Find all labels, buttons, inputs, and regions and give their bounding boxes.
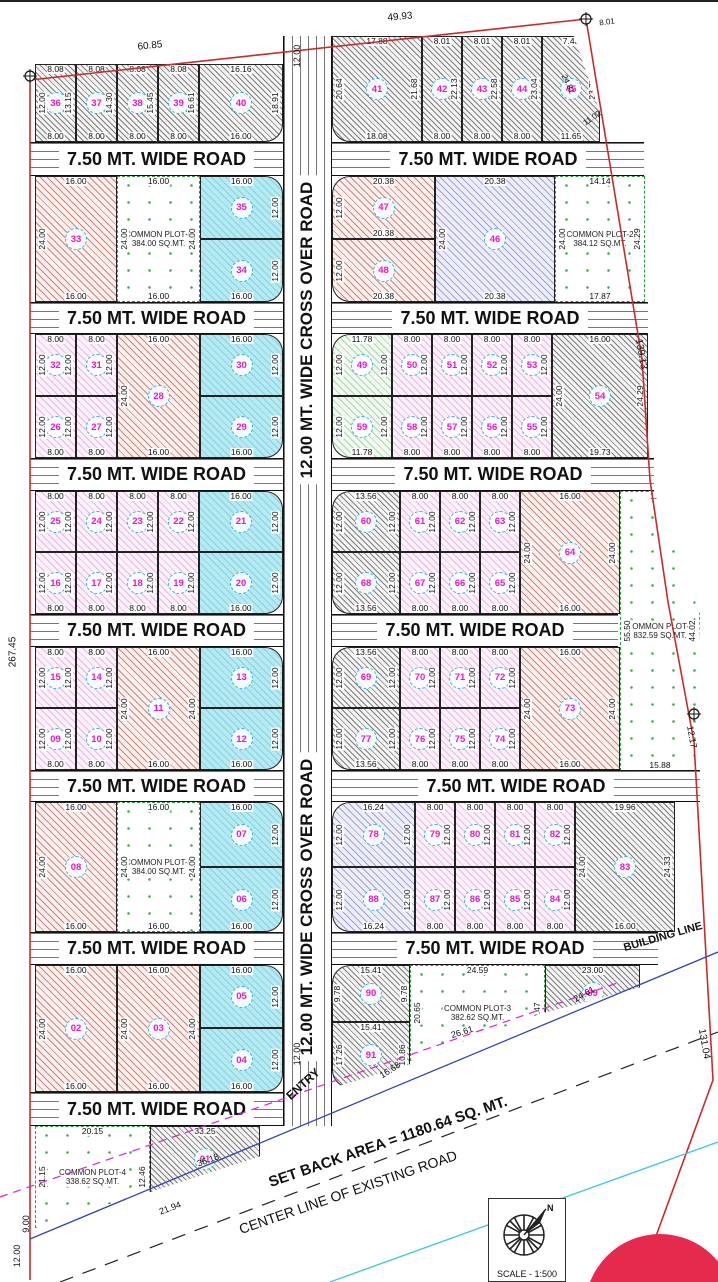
dimension-label: 12.00 <box>38 91 47 114</box>
dimension-label: 8.00 <box>491 492 510 501</box>
road-label: 7.50 MT. WIDE ROAD <box>59 308 254 329</box>
dimension-label: 12.00 <box>500 415 509 438</box>
dimension-label: 8.00 <box>169 492 188 501</box>
dimension-label: 12.00 <box>380 415 389 438</box>
dimension-label: 16.00 <box>147 760 170 769</box>
dimension-label: 8.00 <box>128 604 147 613</box>
common-plot-name: COMMON PLOT-5 <box>125 858 192 867</box>
dimension-label: 12.00 <box>271 888 280 911</box>
dimension-label: 8.00 <box>546 803 565 812</box>
dimension-label: 16.00 <box>613 922 636 931</box>
dimension-label: 12.00 <box>335 571 344 594</box>
dimension-label: 12.00 <box>105 510 114 533</box>
dimension-label: 24.00 <box>120 384 129 407</box>
dimension-label: 12.00 <box>468 666 477 689</box>
dimension-label: 16.00 <box>588 335 611 344</box>
dimension-label: 12.00 <box>335 353 344 376</box>
dimension-label: 8.01 <box>433 37 452 46</box>
dimension-label: 16.00 <box>147 448 170 457</box>
annotation-text: 139.13 <box>633 338 649 370</box>
annotation-text: 21.94 <box>158 1199 183 1216</box>
annotation-text: 131.04 <box>696 1028 712 1060</box>
dimension-label: 8.00 <box>46 132 65 141</box>
common-plot-label: COMMON PLOT-6384.00 SQ.MT. <box>123 229 194 249</box>
dimension-label: 12.00 <box>64 415 73 438</box>
dimension-label: 8.00 <box>433 132 452 141</box>
dimension-label: 12.00 <box>105 727 114 750</box>
dimension-label: 12.00 <box>403 888 412 911</box>
common-plot-area: 384.00 SQ.MT. <box>125 867 192 876</box>
dimension-label: 24.33 <box>663 855 672 878</box>
dimension-label: 16.00 <box>230 177 253 186</box>
dimension-label: 12.00 <box>271 1048 280 1071</box>
dimension-label: 24.00 <box>120 227 129 250</box>
dimension-label: 8.00 <box>473 132 492 141</box>
road-label: 7.50 MT. WIDE ROAD <box>59 1099 254 1120</box>
dimension-label: 16.00 <box>230 760 253 769</box>
dimension-label: 8.00 <box>403 335 422 344</box>
dimension-label: 8.00 <box>128 492 147 501</box>
dimension-label: 12.00 <box>540 415 549 438</box>
dimension-label: 22.58 <box>490 77 499 100</box>
road-label: 7.50 MT. WIDE ROAD <box>392 308 587 329</box>
dimension-label: 8.00 <box>451 604 470 613</box>
dimension-label: 16.00 <box>147 803 170 812</box>
dimension-label: 8.00 <box>46 335 65 344</box>
dimension-label: 16.00 <box>230 966 253 975</box>
dimension-label: 12.00 <box>460 353 469 376</box>
dimension-label: 8.08 <box>128 65 147 74</box>
dimension-label: 8.00 <box>46 648 65 657</box>
dimension-label: 12.00 <box>38 353 47 376</box>
dimension-label: 8.00 <box>87 604 106 613</box>
dimension-label: 24.00 <box>188 697 197 720</box>
dimension-label: 20.64 <box>335 77 344 100</box>
dimension-label: 8.00 <box>491 760 510 769</box>
cross-over-road-label: 12.00 MT. WIDE CROSS OVER ROAD <box>297 753 317 1062</box>
dimension-label: 9.78 <box>400 984 409 1003</box>
dimension-label: 17.87 <box>588 292 611 301</box>
annotation-text: 16.68 <box>378 1060 402 1081</box>
common-plot-name: COMMON PLOT-6 <box>125 230 192 239</box>
dimension-label: 22.13 <box>450 77 459 100</box>
dimension-label: 16.00 <box>230 1082 253 1091</box>
dimension-label: 13.56 <box>354 648 377 657</box>
road-label: 7.50 MT. WIDE ROAD <box>59 620 254 641</box>
common-plot-label: COMMON PLOT-5384.00 SQ.MT. <box>123 857 194 877</box>
dimension-label: 12.00 <box>271 415 280 438</box>
dimension-label: 8.00 <box>426 803 445 812</box>
dimension-label: 20.38 <box>372 177 395 186</box>
dimension-label: 16.00 <box>64 803 87 812</box>
dimension-label: 8.00 <box>451 760 470 769</box>
dimension-label: 8.00 <box>87 448 106 457</box>
dimension-label: 8.01 <box>513 37 532 46</box>
dimension-label: 12.00 <box>443 888 452 911</box>
road-label: 7.50 MT. WIDE ROAD <box>59 776 254 797</box>
dimension-label: 12.00 <box>105 571 114 594</box>
dimension-label: 12.00 <box>146 510 155 533</box>
dimension-label: 12.00 <box>468 510 477 533</box>
dimension-label: 16.00 <box>230 448 253 457</box>
annotation-text: 12.00 <box>292 45 302 68</box>
dimension-label: 24.00 <box>120 1017 129 1040</box>
annotation-text: 49.93 <box>387 10 413 23</box>
dimension-label: 24.00 <box>188 1017 197 1040</box>
dimension-label: 13.56 <box>354 760 377 769</box>
dimension-label: 16.24 <box>362 803 385 812</box>
dimension-label: 24.00 <box>578 855 587 878</box>
dimension-label: 8.00 <box>443 448 462 457</box>
dimension-label: 8.00 <box>546 922 565 931</box>
dimension-label: 12.00 <box>335 415 344 438</box>
dimension-label: 24.00 <box>608 541 617 564</box>
dimension-label: 12.00 <box>271 823 280 846</box>
dimension-label: 12.00 <box>64 571 73 594</box>
dimension-label: 24.00 <box>188 855 197 878</box>
dimension-label: 12.00 <box>523 823 532 846</box>
dimension-label: 8.00 <box>426 922 445 931</box>
road-label: 7.50 MT. WIDE ROAD <box>59 464 254 485</box>
dimension-label: 12.00 <box>187 510 196 533</box>
dimension-label: 16.00 <box>64 922 87 931</box>
dimension-label: 8.00 <box>451 492 470 501</box>
dimension-label: 24.29 <box>636 384 645 407</box>
dimension-label: 12.00 <box>468 727 477 750</box>
dimension-label: 8.00 <box>87 760 106 769</box>
dimension-label: 12.00 <box>428 571 437 594</box>
dimension-label: 9.78 <box>333 984 342 1003</box>
dimension-label: 16.00 <box>64 177 87 186</box>
dimension-label: 12.00 <box>483 888 492 911</box>
dimension-label: 20.38 <box>372 229 395 238</box>
dimension-label: 13.56 <box>354 604 377 613</box>
dimension-label: 12.00 <box>38 666 47 689</box>
dimension-label: 24.00 <box>38 1017 47 1040</box>
dimension-label: 8.00 <box>87 335 106 344</box>
dimension-label: 16.00 <box>558 760 581 769</box>
dimension-label: 16.00 <box>229 132 252 141</box>
dimension-label: 12.00 <box>271 196 280 219</box>
dimension-label: 12.00 <box>335 510 344 533</box>
dimension-label: 8.00 <box>506 922 525 931</box>
dimension-label: 21.68 <box>410 77 419 100</box>
dimension-label: 12.00 <box>403 823 412 846</box>
dimension-label: 18.91 <box>271 91 280 114</box>
dimension-label: 11.78 <box>351 448 374 457</box>
scale-label: SCALE - 1:500 <box>497 1269 557 1279</box>
dimension-label: 16.00 <box>230 922 253 931</box>
dimension-label: 8.00 <box>169 604 188 613</box>
annotations-layer: 60.8549.938.0111.0224.81267.4512.0012.00… <box>0 2 718 1282</box>
dimension-label: 8.00 <box>491 648 510 657</box>
road-label: 7.50 MT. WIDE ROAD <box>377 620 572 641</box>
dimension-label: 12.00 <box>380 353 389 376</box>
dimension-label: 8.00 <box>411 760 430 769</box>
north-label: N <box>547 1203 554 1213</box>
dimension-label: 8.01 <box>473 37 492 46</box>
dimension-label: 12.00 <box>420 415 429 438</box>
dimension-label: 12.00 <box>388 727 397 750</box>
dimension-label: 13.56 <box>354 492 377 501</box>
dimension-label: 16.00 <box>229 604 252 613</box>
compass-rose-icon: N <box>496 1201 558 1263</box>
dimension-label: 12.00 <box>523 888 532 911</box>
dimension-label: 24.00 <box>558 227 567 250</box>
dimension-label: 24.00 <box>523 541 532 564</box>
dimension-label: 24.00 <box>438 227 447 250</box>
dimension-label: 8.00 <box>443 335 462 344</box>
road-label: 7.50 MT. WIDE ROAD <box>418 776 613 797</box>
dimension-label: 20.38 <box>372 292 395 301</box>
dimension-label: 12.00 <box>38 727 47 750</box>
dimension-label: 16.00 <box>230 803 253 812</box>
dimension-label: 12.00 <box>271 571 280 594</box>
dimension-label: 8.00 <box>128 132 147 141</box>
dimension-label: 8.00 <box>411 648 430 657</box>
dimension-label: 12.00 <box>443 823 452 846</box>
dimension-label: 12.00 <box>508 727 517 750</box>
dimension-label: 12.00 <box>335 888 344 911</box>
dimension-label: 19.73 <box>588 448 611 457</box>
site-plan-canvas: 368.088.0012.0013.15378.088.0014.30388.0… <box>0 0 718 1282</box>
dimension-label: 8.00 <box>523 448 542 457</box>
dimension-label: 16.00 <box>64 292 87 301</box>
annotation-text: 8.01 <box>599 16 616 27</box>
dimension-label: 16.00 <box>147 177 170 186</box>
dimension-label: 8.00 <box>451 648 470 657</box>
dimension-label: 12.00 <box>563 888 572 911</box>
dimension-label: 16.00 <box>229 492 252 501</box>
annotation-text: 24.81 <box>560 73 577 95</box>
dimension-label: 15.45 <box>146 91 155 114</box>
dimension-label: 16.00 <box>147 648 170 657</box>
dimension-label: 12.00 <box>388 666 397 689</box>
dimension-label: 8.00 <box>491 604 510 613</box>
annotation-text: 36.18 <box>196 1151 221 1168</box>
dimension-label: 12.00 <box>271 259 280 282</box>
dimension-label: 16.61 <box>187 91 196 114</box>
dimension-label: 8.00 <box>466 803 485 812</box>
annotation-text: 12.17 <box>685 725 699 749</box>
annotation-text: 267.45 <box>8 637 19 668</box>
dimension-label: 24.00 <box>523 697 532 720</box>
dimension-label: 18.08 <box>365 132 388 141</box>
dimension-label: 16.00 <box>558 604 581 613</box>
dimension-label: 8.00 <box>87 492 106 501</box>
dimension-label: 12.00 <box>540 353 549 376</box>
common-plot-area: 384.12 SQ.MT. <box>566 239 633 248</box>
dimension-label: 12.00 <box>105 415 114 438</box>
dimension-label: 8.00 <box>411 492 430 501</box>
dimension-label: 24.29 <box>633 227 642 250</box>
dimension-label: 16.00 <box>147 922 170 931</box>
dimension-label: 24.00 <box>188 227 197 250</box>
dimension-label: 8.00 <box>483 335 502 344</box>
dimension-label: 16.00 <box>147 966 170 975</box>
road-label: 7.50 MT. WIDE ROAD <box>390 149 585 170</box>
dimension-label: 12.00 <box>38 510 47 533</box>
compass-box: N SCALE - 1:500 <box>488 1198 566 1282</box>
dimension-label: 24.00 <box>38 227 47 250</box>
dimension-label: 12.00 <box>38 571 47 594</box>
road-label: 7.50 MT. WIDE ROAD <box>59 149 254 170</box>
dimension-label: 12.00 <box>335 666 344 689</box>
annotation-text: 12.00 <box>292 1043 302 1066</box>
dimension-label: 23.04 <box>530 77 539 100</box>
road-label: 7.50 MT. WIDE ROAD <box>395 464 590 485</box>
common-plot-label: COMMON PLOT-2384.12 SQ.MT. <box>564 229 635 249</box>
dimension-label: 15.41 <box>359 966 382 975</box>
dimension-label: 8.00 <box>46 448 65 457</box>
dimension-label: 13.15 <box>64 91 73 114</box>
dimension-label: 12.00 <box>428 727 437 750</box>
dimension-label: 12.00 <box>428 666 437 689</box>
dimension-label: 24.00 <box>608 697 617 720</box>
dimension-label: 8.00 <box>87 648 106 657</box>
cross-over-road-label: 12.00 MT. WIDE CROSS OVER ROAD <box>297 176 317 485</box>
dimension-label: 16.00 <box>230 292 253 301</box>
dimension-label: 16.00 <box>147 1082 170 1091</box>
dimension-label: 16.00 <box>230 648 253 657</box>
dimension-label: 19.96 <box>613 803 636 812</box>
dimension-label: 12.00 <box>500 353 509 376</box>
annotation-text: 12.00 <box>12 1245 22 1268</box>
dimension-label: 12.00 <box>420 353 429 376</box>
dimension-label: 12.00 <box>146 571 155 594</box>
dimension-label: 16.00 <box>147 335 170 344</box>
dimension-label: 8.00 <box>466 922 485 931</box>
dimension-label: 12.00 <box>468 571 477 594</box>
dimension-label: 17.88 <box>365 37 388 46</box>
dimension-label: 16.00 <box>558 492 581 501</box>
dimension-label: 16.00 <box>64 1082 87 1091</box>
dimension-label: 16.00 <box>558 648 581 657</box>
dimension-label: 24.00 <box>555 384 564 407</box>
dimension-label: 12.00 <box>335 196 344 219</box>
dimension-label: 12.00 <box>335 259 344 282</box>
dimension-label: 8.08 <box>46 65 65 74</box>
annotation-text: 9.00 <box>21 1215 31 1233</box>
dimension-label: 12.00 <box>64 510 73 533</box>
dimension-label: 12.00 <box>64 353 73 376</box>
dimension-label: 12.00 <box>428 510 437 533</box>
dimension-label: 12.00 <box>271 727 280 750</box>
dimension-label: 14.30 <box>105 91 114 114</box>
dimension-label: 12.00 <box>64 666 73 689</box>
dimension-label: 16.16 <box>229 65 252 74</box>
dimension-label: 12.00 <box>105 353 114 376</box>
dimension-label: 12.00 <box>271 510 280 533</box>
dimension-label: 16.00 <box>147 292 170 301</box>
annotation-text: ENTRY <box>283 1065 322 1102</box>
dimension-label: 16.00 <box>230 335 253 344</box>
dimension-label: 8.00 <box>46 492 65 501</box>
dimension-label: 12.00 <box>271 985 280 1008</box>
dimension-label: 12.00 <box>335 823 344 846</box>
common-plot-name: COMMON PLOT-2 <box>566 230 633 239</box>
road-label: 7.50 MT. WIDE ROAD <box>59 938 254 959</box>
dimension-label: 16.24 <box>362 922 385 931</box>
dimension-label: 8.00 <box>513 132 532 141</box>
annotation-text: 60.85 <box>137 39 163 53</box>
dimension-label: 8.08 <box>87 65 106 74</box>
dimension-label: 12.00 <box>483 823 492 846</box>
dimension-label: 8.00 <box>169 132 188 141</box>
dimension-label: 12.00 <box>187 571 196 594</box>
dimension-label: 12.00 <box>563 823 572 846</box>
dimension-label: 12.00 <box>64 727 73 750</box>
dimension-label: 12.00 <box>388 571 397 594</box>
dimension-label: 24.00 <box>120 697 129 720</box>
dimension-label: 20.38 <box>483 177 506 186</box>
dimension-label: 24.00 <box>38 855 47 878</box>
dimension-label: 14.14 <box>588 177 611 186</box>
road-label: 7.50 MT. WIDE ROAD <box>397 938 592 959</box>
dimension-label: 8.00 <box>46 604 65 613</box>
dimension-label: 12.00 <box>271 353 280 376</box>
dimension-label: 8.00 <box>411 604 430 613</box>
dimension-label: 12.00 <box>271 666 280 689</box>
annotation-text: 11.02 <box>581 109 602 128</box>
dimension-label: 12.00 <box>460 415 469 438</box>
dimension-label: 8.00 <box>46 760 65 769</box>
dimension-label: 8.00 <box>403 448 422 457</box>
dimension-label: 12.00 <box>335 727 344 750</box>
dimension-label: 8.00 <box>87 132 106 141</box>
common-plot-area: 384.00 SQ.MT. <box>125 239 192 248</box>
dimension-label: 20.38 <box>483 292 506 301</box>
dimension-label: 12.00 <box>105 666 114 689</box>
dimension-label: 24.00 <box>120 855 129 878</box>
dimension-label: 16.00 <box>64 966 87 975</box>
dimension-label: 8.00 <box>523 335 542 344</box>
annotation-text: 24.61 <box>572 984 597 1004</box>
dimension-label: 8.00 <box>483 448 502 457</box>
annotation-text: 26.61 <box>450 1024 474 1040</box>
dimension-label: 8.00 <box>506 803 525 812</box>
dimension-label: 12.00 <box>508 571 517 594</box>
dimension-label: 12.00 <box>508 510 517 533</box>
dimension-label: 8.08 <box>169 65 188 74</box>
dimension-label: 12.00 <box>388 510 397 533</box>
dimension-label: 12.00 <box>38 415 47 438</box>
dimension-label: 11.78 <box>351 335 374 344</box>
dimension-label: 12.00 <box>508 666 517 689</box>
